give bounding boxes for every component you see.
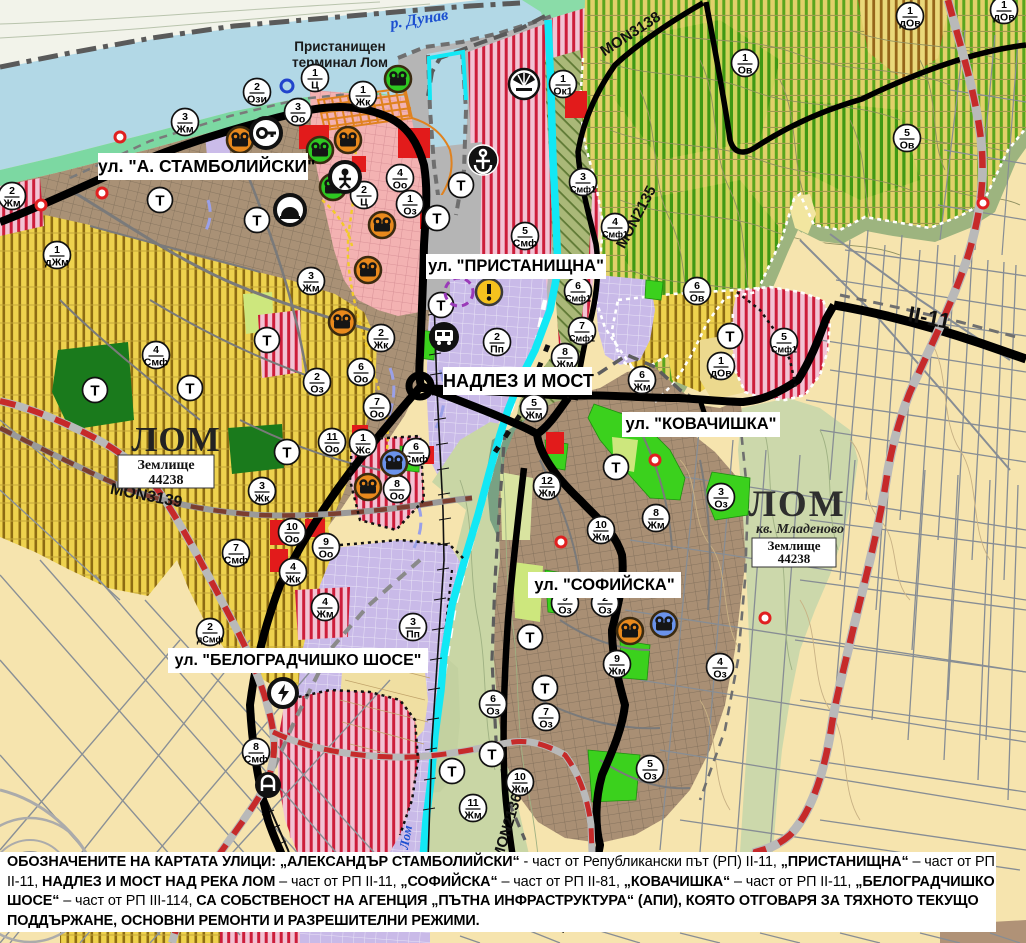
svg-text:44238: 44238 (149, 473, 184, 488)
svg-text:1: 1 (360, 432, 366, 444)
svg-text:Смф: Смф (224, 555, 248, 567)
svg-text:Смф1: Смф1 (570, 185, 596, 195)
svg-text:6: 6 (490, 693, 496, 705)
svg-text:Ози: Ози (247, 94, 267, 106)
svg-text:Оз: Оз (558, 605, 571, 617)
svg-text:1: 1 (54, 244, 60, 256)
svg-text:Т: Т (611, 460, 620, 477)
svg-text:9: 9 (614, 653, 620, 665)
svg-text:Ов: Ов (900, 140, 915, 152)
svg-text:Ов: Ов (738, 65, 753, 77)
svg-text:Жм: Жм (463, 810, 481, 822)
svg-text:Жм: Жм (315, 609, 333, 621)
svg-text:4: 4 (290, 561, 296, 573)
svg-text:Оо: Оо (291, 114, 306, 126)
svg-text:Т: Т (525, 630, 534, 647)
svg-text:Оз: Оз (539, 719, 552, 731)
svg-text:10: 10 (514, 771, 526, 783)
svg-text:Жм: Жм (301, 283, 319, 295)
svg-text:1: 1 (407, 193, 413, 205)
svg-text:Ов: Ов (690, 293, 705, 305)
svg-text:Т: Т (90, 383, 99, 400)
svg-text:Ц: Ц (360, 197, 368, 209)
svg-text:2: 2 (9, 185, 15, 197)
svg-text:Т: Т (155, 193, 164, 210)
svg-text:Жм: Жм (591, 532, 609, 544)
svg-text:Ц: Ц (311, 80, 319, 92)
svg-text:Пп: Пп (406, 629, 420, 641)
svg-text:1: 1 (312, 67, 318, 79)
svg-text:дОв: дОв (899, 18, 921, 30)
svg-text:6: 6 (639, 369, 645, 381)
svg-text:Оз: Оз (643, 771, 656, 783)
svg-text:1: 1 (718, 355, 724, 367)
svg-text:3: 3 (308, 270, 314, 282)
svg-text:11: 11 (467, 797, 478, 809)
svg-text:Смф1: Смф1 (569, 334, 595, 344)
svg-text:Оо: Оо (319, 549, 334, 561)
svg-text:Смф1: Смф1 (771, 345, 797, 355)
svg-text:7: 7 (543, 706, 549, 718)
svg-text:6: 6 (694, 280, 700, 292)
svg-text:Оз: Оз (713, 669, 726, 681)
svg-text:5: 5 (904, 127, 910, 139)
svg-text:Жк: Жк (355, 97, 371, 109)
svg-text:Жм: Жм (175, 124, 193, 136)
svg-text:Пп: Пп (490, 344, 504, 356)
svg-text:5: 5 (781, 331, 787, 343)
svg-text:1: 1 (360, 84, 366, 96)
svg-text:2: 2 (361, 184, 367, 196)
svg-text:8: 8 (562, 346, 568, 358)
svg-text:Смф: Смф (244, 754, 268, 766)
svg-text:дСмф: дСмф (197, 635, 224, 645)
svg-text:5: 5 (522, 225, 528, 237)
svg-text:2: 2 (207, 621, 213, 633)
svg-text:Оо: Оо (393, 180, 408, 192)
svg-text:4: 4 (717, 656, 723, 668)
svg-text:Оо: Оо (325, 444, 340, 456)
svg-text:Жм: Жм (510, 784, 528, 796)
svg-text:9: 9 (323, 536, 329, 548)
svg-text:Оо: Оо (354, 374, 369, 386)
svg-text:8: 8 (394, 478, 400, 490)
svg-text:4: 4 (153, 344, 159, 356)
svg-text:дОв: дОв (710, 368, 732, 380)
svg-text:5: 5 (647, 758, 653, 770)
svg-text:10: 10 (286, 521, 298, 533)
svg-text:Смф1: Смф1 (602, 230, 628, 240)
svg-text:Т: Т (487, 747, 496, 764)
svg-text:Оз: Оз (714, 499, 727, 511)
svg-text:ЛОМ: ЛОМ (748, 484, 845, 525)
svg-text:ЛОМ: ЛОМ (131, 420, 220, 459)
svg-text:1: 1 (1001, 0, 1007, 11)
svg-text:Жс: Жс (354, 445, 370, 457)
svg-text:8: 8 (653, 507, 659, 519)
svg-text:Оз: Оз (310, 384, 323, 396)
svg-text:1: 1 (560, 73, 566, 85)
svg-text:3: 3 (259, 480, 265, 492)
svg-text:5: 5 (531, 397, 537, 409)
svg-text:2: 2 (378, 327, 384, 339)
svg-text:Т: Т (540, 681, 549, 698)
svg-text:1: 1 (742, 52, 748, 64)
svg-text:дЖм: дЖм (45, 257, 69, 269)
svg-text:Т: Т (436, 298, 445, 315)
svg-text:Землище: Землище (137, 458, 194, 473)
svg-text:8: 8 (253, 741, 259, 753)
svg-text:2: 2 (254, 81, 260, 93)
svg-text:7: 7 (579, 320, 585, 332)
svg-text:Оо: Оо (370, 409, 385, 421)
svg-text:10: 10 (595, 519, 607, 531)
svg-text:44238: 44238 (778, 551, 811, 566)
svg-text:1: 1 (907, 5, 913, 17)
svg-text:Жм: Жм (607, 666, 625, 678)
svg-text:Жм: Жм (646, 520, 664, 532)
svg-text:Оз: Оз (403, 206, 416, 218)
svg-text:4: 4 (397, 167, 403, 179)
svg-text:Т: Т (282, 445, 291, 462)
svg-text:6: 6 (575, 280, 581, 292)
svg-text:Жм: Жм (537, 488, 555, 500)
svg-text:7: 7 (374, 396, 380, 408)
svg-text:Ок1: Ок1 (553, 86, 572, 98)
svg-text:Т: Т (185, 381, 194, 398)
svg-text:Оз: Оз (486, 706, 499, 718)
svg-text:6: 6 (358, 361, 364, 373)
svg-text:3: 3 (580, 171, 586, 183)
svg-text:11: 11 (326, 431, 337, 443)
svg-text:2: 2 (314, 371, 320, 383)
svg-text:2: 2 (494, 331, 500, 343)
svg-text:4: 4 (322, 596, 328, 608)
svg-text:Жм: Жм (524, 410, 542, 422)
svg-text:12: 12 (541, 475, 553, 487)
svg-text:Т: Т (252, 213, 261, 230)
svg-text:Жк: Жк (254, 493, 270, 505)
svg-text:Смф: Смф (513, 238, 537, 250)
svg-text:Т: Т (725, 329, 734, 346)
svg-text:Оо: Оо (390, 491, 405, 503)
svg-text:Жк: Жк (285, 574, 301, 586)
svg-text:Т: Т (456, 178, 465, 195)
svg-text:Оз: Оз (598, 605, 611, 617)
svg-text:кв. Младеново: кв. Младеново (756, 522, 844, 537)
svg-text:дОв: дОв (993, 12, 1015, 24)
svg-text:Т: Т (262, 333, 271, 350)
svg-text:Смф1: Смф1 (565, 294, 591, 304)
svg-text:Смф: Смф (144, 357, 168, 369)
svg-text:3: 3 (295, 101, 301, 113)
svg-text:Пристанищен: Пристанищен (294, 39, 385, 54)
svg-text:Жм: Жм (2, 198, 20, 210)
svg-text:Т: Т (432, 211, 441, 228)
svg-text:6: 6 (413, 441, 419, 453)
svg-text:7: 7 (233, 542, 239, 554)
svg-text:4: 4 (612, 216, 618, 228)
svg-text:3: 3 (182, 111, 188, 123)
svg-text:Оо: Оо (285, 534, 300, 546)
svg-text:Жм: Жм (632, 382, 650, 394)
svg-text:3: 3 (410, 616, 416, 628)
svg-text:Жк: Жк (373, 340, 389, 352)
svg-text:3: 3 (718, 486, 724, 498)
svg-text:Т: Т (447, 764, 456, 781)
